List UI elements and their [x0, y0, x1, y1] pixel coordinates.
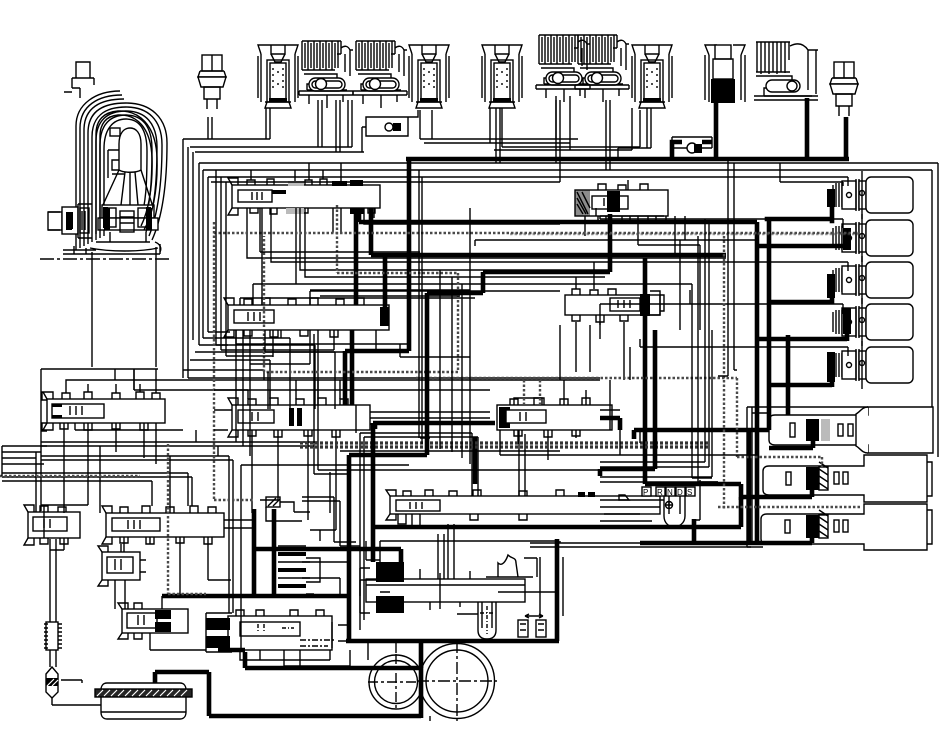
- svg-text:S: S: [687, 488, 692, 497]
- svg-text:P: P: [643, 488, 648, 497]
- svg-text:N: N: [667, 488, 673, 497]
- svg-text:R: R: [657, 488, 663, 497]
- svg-text:D: D: [677, 488, 683, 497]
